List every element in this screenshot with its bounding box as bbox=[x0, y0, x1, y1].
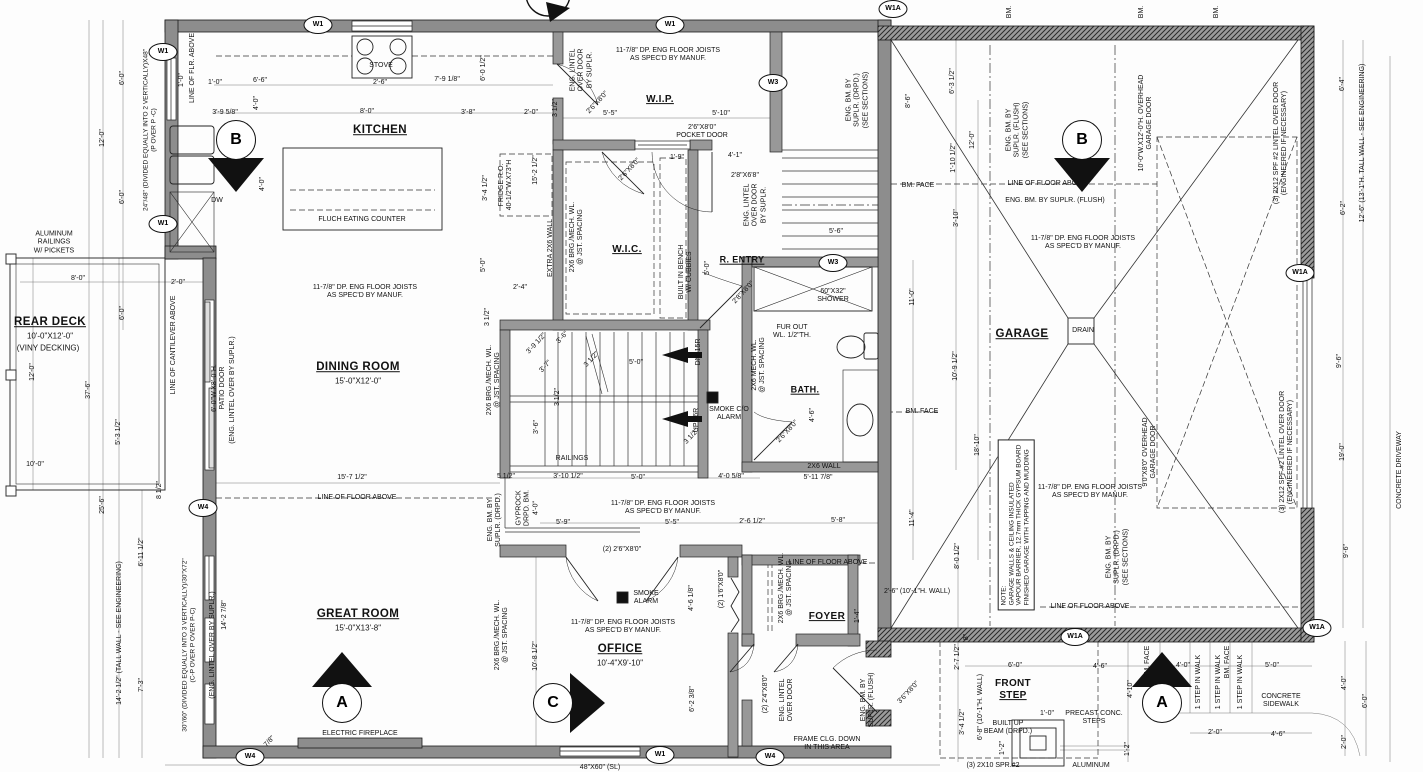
dim-label: 1'-10 1/2" bbox=[950, 143, 958, 173]
window-label: 48"X60" (SL) bbox=[580, 764, 620, 772]
room-label-front-step-2: STEP bbox=[999, 690, 1026, 702]
dim-label: 2'-7 1/2" bbox=[954, 644, 962, 670]
precast-note: PRECAST CONC. STEPS bbox=[1065, 710, 1122, 727]
dim-label: 4'-0 5/8" bbox=[718, 473, 744, 481]
dim-label: 8 1/2" bbox=[156, 481, 164, 499]
dim-label: 4'-0" bbox=[1176, 662, 1190, 670]
dim-label: 5'-0" bbox=[1265, 662, 1279, 670]
dim-label: 15'-2 1/2" bbox=[532, 155, 540, 185]
dim-label: 4'-6" bbox=[1271, 731, 1285, 739]
bm-face-label: BM. FACE bbox=[902, 182, 935, 190]
dim-label: 5'-0" bbox=[629, 359, 643, 367]
dim-label: 2'-6" bbox=[373, 79, 387, 87]
mech-wall-note: 2X6 MECH. WL. @ JST. SPACING bbox=[751, 337, 768, 393]
dim-label: 1'-0" bbox=[178, 73, 186, 87]
dim-label: 3'-4 1/2" bbox=[482, 175, 490, 201]
dim-label: 8'-6" bbox=[905, 94, 913, 108]
dim-label: 5'-3 1/2" bbox=[115, 419, 123, 445]
dim-label: 8'-0" bbox=[71, 275, 85, 283]
dim-label: 14'-2 7/8" bbox=[221, 600, 229, 630]
eng-beam-note: ENG. BM. BY SUPLR. (FLUSH) (SEE SECTIONS… bbox=[1006, 102, 1031, 158]
aluminum-railing-note: ALUMINUM RAILINGS W/ PICKETS bbox=[34, 231, 74, 256]
dim-label: 3 1/2" bbox=[552, 99, 560, 117]
line-of-cantilever: LINE OF CANTILEVER ABOVE bbox=[170, 296, 178, 395]
dim-label: 1'-0" bbox=[1040, 710, 1054, 718]
dim-label: 4'-6" bbox=[809, 408, 817, 422]
lintel-note: ENG. LINTEL OVER DOOR BY SUPLR. bbox=[570, 49, 595, 92]
dim-label: 9'-6" bbox=[1343, 544, 1351, 558]
room-note-deck: (VINY DECKING) bbox=[17, 343, 80, 352]
bearing-wall-note: 2X6 BRG./MECH. WL. @ JST. SPACING bbox=[569, 202, 586, 272]
dim-label: 6'-0" bbox=[119, 190, 127, 204]
joist-note: 11-7/8" DP. ENG FLOOR JOISTS AS SPEC'D B… bbox=[616, 47, 720, 64]
room-label-wic: W.I.C. bbox=[612, 244, 642, 256]
dim-label: 5'-10" bbox=[712, 110, 730, 118]
dim-label: 10'-9 1/2" bbox=[952, 351, 960, 381]
eng-beam-note: ENG. BM. BY SUPLR. (DRPD.) bbox=[487, 493, 504, 547]
wall-type-marker: W1 bbox=[646, 746, 675, 764]
line-of-floor-above: LINE OF FLOOR ABOVE bbox=[1008, 180, 1087, 188]
dim-label: 2'-6 1/2" bbox=[739, 518, 765, 526]
dim-label: 1'-2" bbox=[1124, 742, 1132, 756]
section-marker-a: A bbox=[1142, 683, 1182, 723]
dim-label: 5'-0" bbox=[631, 474, 645, 482]
wall-type-marker: W3 bbox=[819, 254, 848, 272]
step-in-walk-note: 1 STEP IN WALK bbox=[1215, 655, 1223, 709]
dim-label: 3 1/2" bbox=[554, 388, 562, 406]
joist-note: 11-7/8" DP. ENG FLOOR JOISTS AS SPEC'D B… bbox=[1038, 484, 1142, 501]
patio-door-note: 6'-0"W.X8'-0"H. PATIO DOOR bbox=[211, 364, 228, 412]
door-label: 2'8"X6'8" bbox=[731, 172, 759, 180]
room-label-bath: BATH. bbox=[791, 385, 820, 396]
dim-label: 3'-9 5/8" bbox=[212, 109, 238, 117]
room-label-kitchen: KITCHEN bbox=[353, 124, 407, 138]
dim-label: 4'-1" bbox=[728, 152, 742, 160]
railings-note: RAILINGS bbox=[556, 455, 589, 463]
dim-label: 9'-6" bbox=[1336, 354, 1344, 368]
fridge-label: FRIDGE R.O. 40-1/2"W.X73"H bbox=[498, 160, 515, 211]
dim-label: 6'-6" bbox=[253, 77, 267, 85]
dim-label: 7'-3" bbox=[138, 678, 146, 692]
dim-label: 37'-6" bbox=[85, 381, 93, 399]
dim-label: 6'-0 1/2" bbox=[480, 55, 488, 81]
dim-label: 5'-6" bbox=[829, 228, 843, 236]
dim-label: 2'-0" bbox=[524, 109, 538, 117]
fur-out-note: FUR OUT WL. 1/2"TH. bbox=[773, 324, 811, 341]
section-marker-b: B bbox=[1062, 120, 1102, 160]
dim-label: 15'-7 1/2" bbox=[337, 474, 367, 482]
lintel-2x12-note: (3) 2X12 SPF #2 LINTEL OVER DOOR (ENGINE… bbox=[1279, 391, 1296, 513]
dim-label: 3'-10 1/2" bbox=[553, 473, 583, 481]
section-marker-b: B bbox=[216, 120, 256, 160]
joist-note: 11-7/8" DP. ENG FLOOR JOISTS AS SPEC'D B… bbox=[313, 284, 417, 301]
bm-face-label: BM. FACE bbox=[906, 408, 939, 416]
lintel-2x12-note: (3) 2X12 SPF #2 LINTEL OVER DOOR (ENGINE… bbox=[1273, 82, 1290, 204]
bm-face-label: BM. FACE bbox=[1144, 646, 1152, 679]
eng-beam-note: ENG. BM. BY SUPLR. (FLUSH) bbox=[1005, 197, 1104, 205]
room-label-office: OFFICE bbox=[598, 643, 643, 657]
bench-note: BUILT IN BENCH W/ CUBBIES bbox=[678, 245, 695, 300]
bm-face-label: BM. FACE bbox=[1224, 646, 1232, 679]
fireplace-label: ELECTRIC FIREPLACE bbox=[322, 730, 397, 738]
garage-note: NOTE: GARAGE WALLS & CEILING INSULATED V… bbox=[998, 440, 1035, 611]
wall-type-marker: W3 bbox=[759, 74, 788, 92]
line-of-flr-above: LINE OF FLR. ABOVE bbox=[189, 33, 197, 103]
wall-type-marker: W1 bbox=[149, 215, 178, 233]
room-label-foyer: FOYER bbox=[809, 611, 845, 623]
dim-label: 5'-11 7/8" bbox=[804, 474, 833, 482]
room-label-great: GREAT ROOM bbox=[317, 608, 399, 622]
dim-label: 4'-10" bbox=[1127, 680, 1135, 698]
dim-label: 6'-11 1/2" bbox=[138, 538, 146, 567]
dim-label: 5'-9" bbox=[556, 519, 570, 527]
wall-type-marker: W4 bbox=[236, 748, 265, 766]
wall-type-marker: W1A bbox=[879, 0, 908, 18]
dim-label: 1'-2" bbox=[999, 741, 1007, 755]
room-label-wip: W.I.P. bbox=[646, 94, 674, 106]
joist-note: 11-7/8" DP. ENG FLOOR JOISTS AS SPEC'D B… bbox=[571, 619, 675, 636]
dim-label: 12'-0" bbox=[969, 131, 977, 149]
bearing-wall-note: 2X6 BRG./MECH. WL. @ JST. SPACING bbox=[486, 345, 503, 415]
dim-label: 1'-9" bbox=[670, 154, 684, 162]
smoke-co-alarm-label: SMOKE C/O ALARM bbox=[709, 406, 749, 423]
gyprock-note: GYPROCK DRPD. BM. 4'-0" bbox=[516, 490, 541, 526]
dim-label: 6'-2" bbox=[1340, 201, 1348, 215]
window-note: 24"/48" (DIVIDED EQUALLY INTO 2 VERTICAL… bbox=[142, 49, 157, 211]
lintel-note: ENG. LINTEL OVER DOOR bbox=[779, 679, 796, 722]
dim-label: 10'-0" bbox=[26, 461, 44, 469]
door-label: (2) 1'6"X8'0" bbox=[718, 570, 726, 608]
dim-label: 6'-0" bbox=[119, 306, 127, 320]
lintel-note: ENG. LINTEL OVER DOOR BY SUPLR. bbox=[744, 184, 769, 227]
dim-label: 2'-0" bbox=[1341, 735, 1349, 749]
door-label: (2) 2'6"X8'0" bbox=[603, 546, 641, 554]
dim-label: 2'-0" bbox=[171, 279, 185, 287]
drain-label: DRAIN bbox=[1072, 327, 1094, 335]
room-label-rentry: R. ENTRY bbox=[720, 255, 765, 266]
extra-wall-note: EXTRA 2X6 WALL bbox=[547, 219, 555, 277]
bearing-wall-note: 2X6 BRG./MECH. WL. @ JST. SPACING bbox=[494, 600, 511, 670]
shower-label: 60"X32" SHOWER bbox=[817, 288, 849, 305]
dim-label: 6'-4" bbox=[1339, 77, 1347, 91]
dim-label: 5'-0" bbox=[480, 258, 488, 272]
dim-label: 8'-0" bbox=[360, 108, 374, 116]
floor-plan: KITCHEN W.I.P. W.I.C. R. ENTRY DINING RO… bbox=[0, 0, 1423, 772]
wall-2x6-note: 2X6 WALL bbox=[807, 463, 840, 471]
room-size-office: 10'-4"X9'-10" bbox=[597, 658, 643, 667]
overhead-door-note: 10'-0"W.X12'-0"H. OVERHEAD GARAGE DOOR bbox=[1138, 75, 1155, 172]
dim-label: 4'-6" bbox=[1093, 663, 1107, 671]
wall-type-marker: W1 bbox=[656, 16, 685, 34]
dim-label: 8'-0 1/2" bbox=[954, 543, 962, 569]
eng-beam-note: ENG. BM. BY SUPLR. (DRPD.) (SEE SECTIONS… bbox=[1106, 529, 1131, 585]
dim-label: 18'-10" bbox=[974, 434, 982, 456]
room-label-front-step-1: FRONT bbox=[995, 678, 1031, 690]
dim-label: 8" bbox=[963, 634, 971, 640]
line-of-floor-above: LINE OF FLOOR ABOVE bbox=[1051, 603, 1130, 611]
dim-label: 6'-0" bbox=[1008, 662, 1022, 670]
joist-note: 11-7/8" DP. ENG FLOOR JOISTS AS SPEC'D B… bbox=[1031, 235, 1135, 252]
dim-label: 10'-8 1/2" bbox=[532, 641, 540, 671]
dim-label: 7'-9 1/8" bbox=[434, 76, 460, 84]
built-up-beam-note: BUILT UP BEAM (DRPD.) bbox=[984, 720, 1032, 737]
window-note: 30"/60" (DIVIDED EQUALLY INTO 3 VERTICAL… bbox=[181, 558, 196, 731]
wall-type-marker: W1A bbox=[1303, 619, 1332, 637]
room-size-great: 15'-0"X13'-8" bbox=[335, 623, 381, 632]
dim-label: 11'-4" bbox=[909, 509, 917, 526]
dim-label: 6'-0" bbox=[119, 71, 127, 85]
lintel-note: (ENG. LINTEL OVER BY SUPLR.) bbox=[209, 591, 217, 698]
overhead-door-note: 9'0"X8'0" OVERHEAD GARAGE DOOR bbox=[1142, 417, 1159, 486]
frame-clg-note: FRAME CLG. DOWN IN THIS AREA bbox=[794, 736, 861, 753]
eng-beam-note: ENG. BM. BY SUPLR. (DRPD.) (SEE SECTIONS… bbox=[846, 72, 871, 128]
dishwasher-label: DW bbox=[211, 197, 223, 205]
room-size-deck: 10'-0"X12'-0" bbox=[27, 331, 73, 340]
dim-label: 5'-0" bbox=[704, 261, 712, 275]
tall-wall-note: 12'-6" (13'-1"H. TALL WALL - SEE ENGINEE… bbox=[1359, 64, 1367, 223]
pocket-door-note: 2'6"X8'0" POCKET DOOR bbox=[676, 124, 728, 141]
dim-label: 6'-0" bbox=[1362, 694, 1370, 708]
wall-type-marker: W1 bbox=[149, 43, 178, 61]
eng-beam-note: ENG. BM. BY SUPLR. (FLUSH) bbox=[860, 673, 877, 728]
dim-label: 6'-2 3/8" bbox=[689, 686, 697, 712]
room-size-dining: 15'-0"X12'-0" bbox=[335, 376, 381, 385]
dim-label: 19'-0" bbox=[1339, 443, 1347, 461]
dim-label: 5 1/2" bbox=[497, 473, 515, 481]
lintel-note: (ENG. LINTEL OVER BY SUPLR.) bbox=[229, 336, 237, 443]
stove-label: STOVE bbox=[369, 62, 393, 70]
bearing-wall-note: 2X6 BRG./MECH. WL. @ JST. SPACING bbox=[778, 553, 795, 623]
dim-label: 12'-0" bbox=[29, 363, 37, 381]
dim-label: 1'-4" bbox=[854, 609, 862, 623]
step-in-walk-note: 1 STEP IN WALK bbox=[1237, 655, 1245, 709]
tall-wall-note: 14'-2 1/2" (TALL WALL - SEE ENGINEERING) bbox=[116, 561, 124, 705]
room-label-garage: GARAGE bbox=[996, 328, 1049, 342]
dim-label: 11'-0" bbox=[909, 288, 917, 305]
stair-dn-label: DN. 15R bbox=[695, 339, 703, 366]
wall-type-marker: W4 bbox=[756, 748, 785, 766]
smoke-alarm-label: SMOKE ALARM bbox=[633, 590, 658, 607]
dim-label: 5'-8" bbox=[831, 517, 845, 525]
section-marker-a: A bbox=[322, 683, 362, 723]
room-label-dining: DINING ROOM bbox=[316, 361, 400, 375]
dim-label: 2'-0" bbox=[1208, 729, 1222, 737]
door-label: (2) 2'4"X8'0" bbox=[762, 675, 770, 713]
dim-label: 4'-6 1/8" bbox=[688, 585, 696, 611]
bm-label: BM. bbox=[1006, 6, 1014, 18]
counter-label: FLUCH EATING COUNTER bbox=[318, 216, 405, 224]
dim-label: 2'-6" (10'-1"H. WALL) bbox=[884, 588, 950, 596]
dim-label: 6'-8" (10'-1"H. WALL) bbox=[977, 674, 985, 740]
driveway-note: CONCRETE DRIVEWAY bbox=[1396, 431, 1404, 509]
dim-label: 5'-5" bbox=[603, 110, 617, 118]
dim-label: 4'-0" bbox=[259, 177, 267, 191]
dim-label: 3'-8" bbox=[461, 109, 475, 117]
section-marker-c: C bbox=[533, 683, 573, 723]
bm-label: BM. bbox=[1213, 6, 1221, 18]
line-of-floor-above: LINE OF FLOOR ABOVE bbox=[318, 494, 397, 502]
dim-label: 1'-0" bbox=[208, 79, 222, 87]
sidewalk-note: CONCRETE SIDEWALK bbox=[1261, 693, 1300, 710]
dim-label: 3'-10" bbox=[953, 209, 961, 227]
wall-type-marker: W1A bbox=[1061, 628, 1090, 646]
dim-label: 6'-3 1/2" bbox=[949, 68, 957, 94]
dim-label: 3'-4 1/2" bbox=[959, 709, 967, 735]
dim-label: 3'-6" bbox=[533, 420, 541, 434]
wall-type-marker: W1A bbox=[1286, 264, 1315, 282]
line-of-floor-above: LINE OF FLOOR ABOVE bbox=[789, 559, 868, 567]
dim-label: 4'-0" bbox=[253, 96, 261, 110]
dim-label: 3 1/2" bbox=[484, 308, 492, 326]
dim-label: 5'-5" bbox=[665, 519, 679, 527]
wall-type-marker: W4 bbox=[189, 499, 218, 517]
room-label-deck: REAR DECK bbox=[14, 316, 86, 330]
joist-note: 11-7/8" DP. ENG FLOOR JOISTS AS SPEC'D B… bbox=[611, 500, 715, 517]
dim-label: 25'-6" bbox=[99, 496, 107, 514]
wall-type-marker: W1 bbox=[304, 16, 333, 34]
dim-label: 2'-4" bbox=[513, 284, 527, 292]
bm-label: BM. bbox=[1138, 6, 1146, 18]
spr-note: (3) 2X10 SPR.#2 bbox=[967, 762, 1020, 770]
dim-label: 4'-0" bbox=[1341, 676, 1349, 690]
aluminum-note: ALUMINUM bbox=[1072, 762, 1109, 770]
step-in-walk-note: 1 STEP IN WALK bbox=[1195, 655, 1203, 709]
dim-label: 12'-0" bbox=[99, 129, 107, 147]
